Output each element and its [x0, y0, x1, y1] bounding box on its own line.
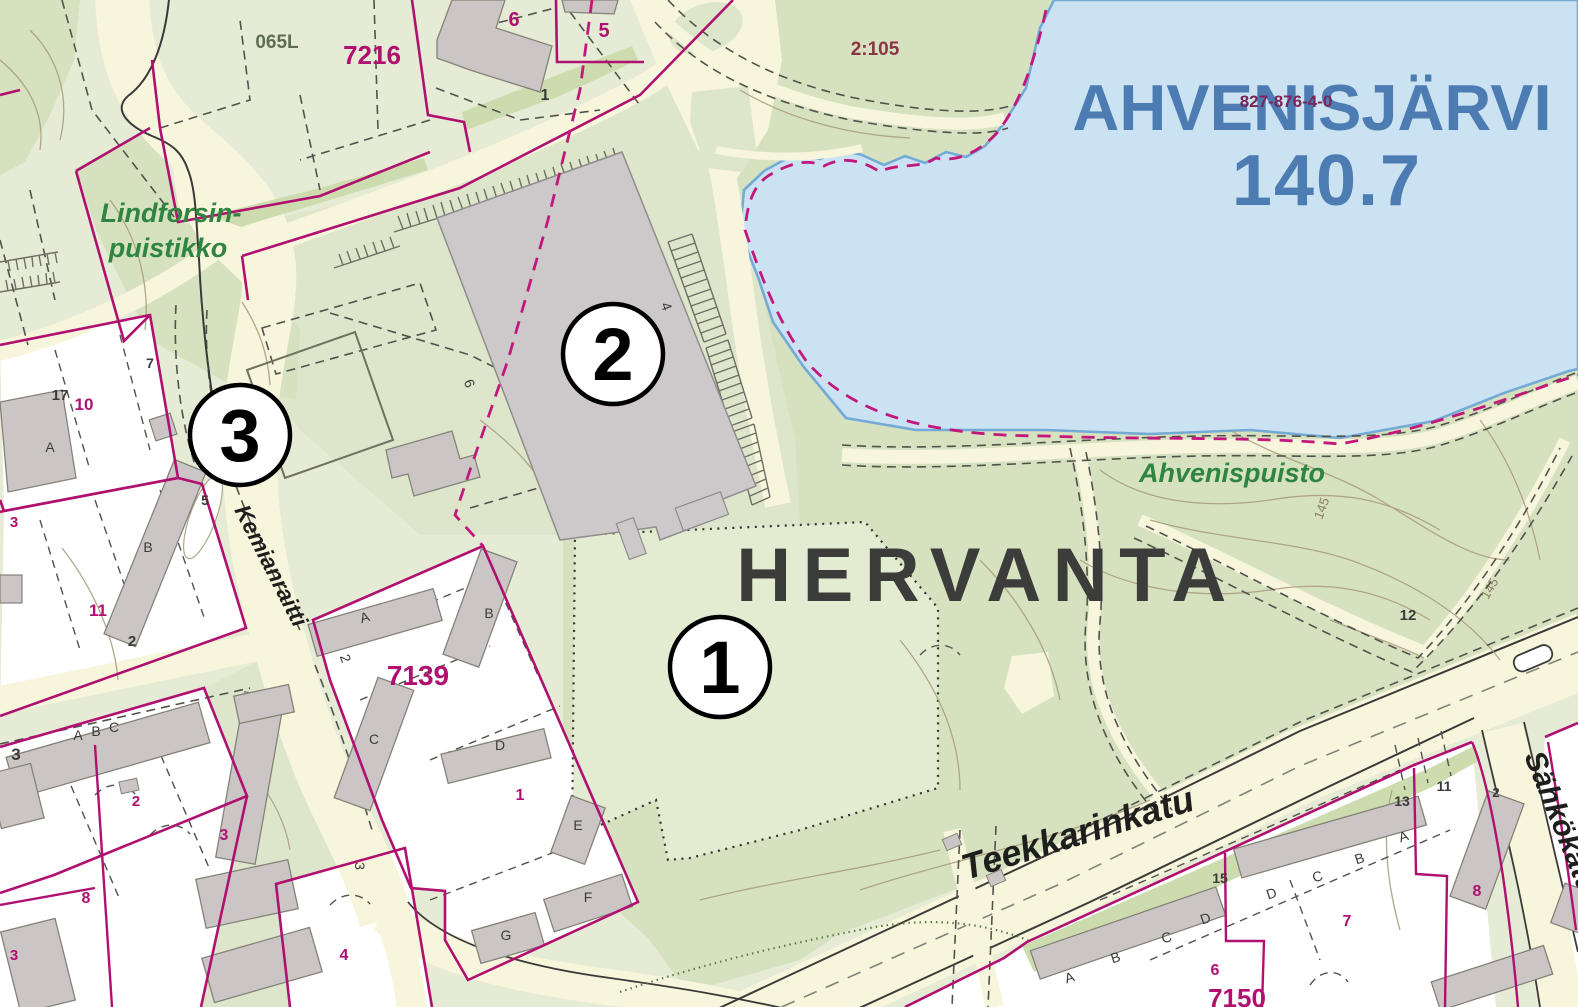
svg-text:Ahvenispuisto: Ahvenispuisto — [1138, 458, 1325, 488]
svg-text:3: 3 — [10, 947, 18, 964]
svg-text:C: C — [369, 731, 379, 747]
svg-text:2: 2 — [128, 633, 136, 650]
svg-text:140.7: 140.7 — [1232, 141, 1422, 221]
svg-text:D: D — [495, 737, 505, 753]
svg-text:6: 6 — [508, 9, 519, 31]
svg-text:3: 3 — [219, 394, 260, 477]
svg-text:B: B — [143, 539, 152, 555]
svg-text:1: 1 — [516, 787, 525, 804]
svg-text:3: 3 — [220, 827, 229, 844]
svg-text:8: 8 — [82, 890, 91, 907]
svg-text:1: 1 — [699, 626, 740, 709]
svg-text:B: B — [91, 723, 100, 739]
svg-text:6: 6 — [1211, 962, 1220, 979]
svg-text:8: 8 — [1473, 883, 1482, 900]
svg-text:17: 17 — [52, 387, 69, 404]
svg-text:3: 3 — [10, 514, 18, 531]
svg-text:Lindforsin-: Lindforsin- — [101, 198, 242, 228]
svg-text:B: B — [484, 605, 493, 621]
svg-text:13: 13 — [1394, 793, 1410, 809]
svg-text:A: A — [45, 439, 55, 455]
svg-text:2:105: 2:105 — [851, 39, 900, 60]
svg-text:HERVANTA: HERVANTA — [736, 533, 1238, 618]
svg-text:827-876-4-0: 827-876-4-0 — [1240, 92, 1333, 111]
svg-text:G: G — [501, 927, 512, 943]
svg-text:12: 12 — [1400, 607, 1417, 624]
svg-text:3: 3 — [352, 862, 368, 870]
svg-text:5: 5 — [598, 20, 609, 42]
svg-text:15: 15 — [1212, 870, 1228, 886]
svg-text:7: 7 — [146, 355, 154, 371]
svg-text:7139: 7139 — [387, 660, 449, 691]
svg-text:7150: 7150 — [1208, 983, 1266, 1007]
svg-text:C: C — [109, 719, 119, 735]
svg-text:puistikko: puistikko — [108, 233, 228, 263]
svg-text:4: 4 — [340, 947, 349, 964]
svg-text:11: 11 — [1437, 778, 1452, 794]
svg-text:F: F — [584, 889, 593, 905]
svg-text:5: 5 — [201, 492, 209, 508]
svg-text:7216: 7216 — [343, 40, 401, 70]
svg-text:7: 7 — [1343, 913, 1352, 930]
svg-text:E: E — [573, 817, 582, 833]
svg-text:3: 3 — [11, 745, 20, 764]
svg-text:11: 11 — [89, 601, 107, 620]
svg-text:1: 1 — [541, 87, 550, 104]
svg-text:065L: 065L — [255, 32, 299, 53]
svg-text:2: 2 — [132, 793, 140, 810]
svg-text:2: 2 — [1492, 785, 1499, 800]
svg-text:10: 10 — [75, 395, 94, 414]
svg-text:A: A — [73, 727, 83, 743]
svg-text:2: 2 — [592, 313, 633, 396]
